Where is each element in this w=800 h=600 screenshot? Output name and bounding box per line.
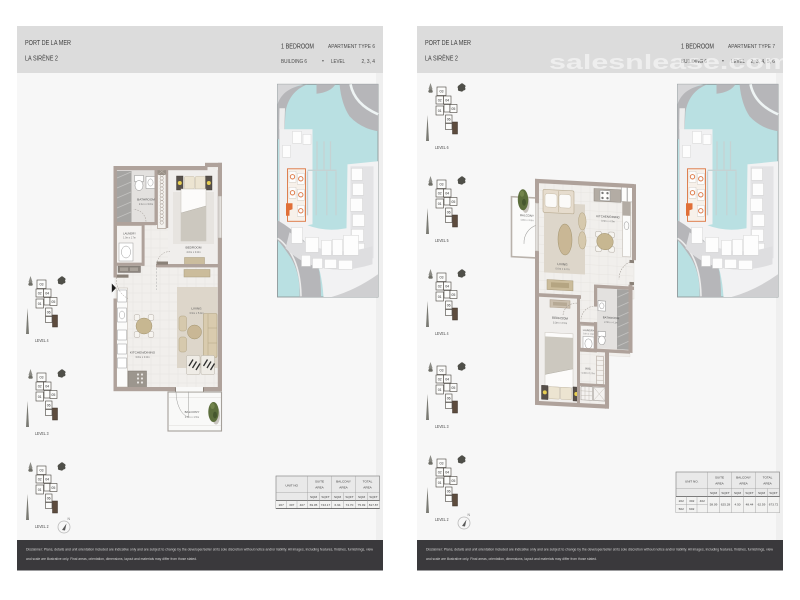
svg-text:•: • [322, 59, 324, 65]
svg-text:4.50: 4.50 [734, 503, 740, 507]
svg-text:UNIT NO: UNIT NO [285, 484, 298, 488]
svg-text:Disclaimer: Plans, details and: Disclaimer: Plans, details and unit orie… [26, 548, 373, 552]
svg-text:LEVEL 4: LEVEL 4 [435, 331, 449, 336]
svg-text:SQM: SQM [358, 495, 365, 499]
svg-text:BALCONY: BALCONY [336, 480, 351, 484]
svg-text:75.99: 75.99 [358, 503, 366, 507]
svg-text:SQM: SQM [758, 491, 765, 495]
svg-text:602: 602 [689, 507, 694, 511]
svg-text:207: 207 [279, 503, 284, 507]
svg-text:LEVEL 6: LEVEL 6 [435, 145, 449, 150]
svg-text:SQFT: SQFT [769, 491, 777, 495]
svg-text:SUITE: SUITE [315, 480, 324, 484]
svg-text:1 BEDROOM: 1 BEDROOM [281, 42, 314, 51]
svg-text:AREA: AREA [763, 482, 772, 486]
svg-text:LAUNDRY: LAUNDRY [123, 232, 136, 236]
svg-text:WIC: WIC [585, 367, 591, 371]
svg-text:BATHROOM: BATHROOM [137, 198, 155, 202]
svg-text:BALCONY: BALCONY [185, 410, 200, 414]
svg-text:4.0m x 3.3m: 4.0m x 3.3m [186, 250, 200, 254]
svg-text:502: 502 [679, 507, 684, 511]
svg-text:PORT DE LA MER: PORT DE LA MER [425, 38, 471, 47]
svg-text:LEVEL: LEVEL [331, 59, 345, 65]
svg-text:and scale are illustrative onl: and scale are illustrative only. Final a… [26, 557, 197, 561]
svg-text:3.9m x 5.4m: 3.9m x 5.4m [189, 311, 203, 315]
svg-text:1.0m x 1.7m: 1.0m x 1.7m [123, 237, 136, 239]
svg-text:SQM: SQM [734, 491, 741, 495]
svg-text:AREA: AREA [339, 486, 348, 490]
svg-text:AREA: AREA [315, 486, 324, 490]
svg-text:817.87: 817.87 [369, 503, 379, 507]
svg-text:307: 307 [289, 503, 294, 507]
svg-text:LEVEL 2: LEVEL 2 [435, 517, 449, 522]
svg-text:SQFT: SQFT [721, 491, 729, 495]
svg-text:SQM: SQM [334, 495, 341, 499]
svg-text:salesnlease.com: salesnlease.com [549, 51, 791, 74]
svg-text:LEVEL 5: LEVEL 5 [435, 238, 449, 243]
svg-text:302: 302 [689, 499, 694, 503]
svg-text:AREA: AREA [715, 482, 724, 486]
svg-text:SQFT: SQFT [345, 495, 353, 499]
svg-text:SQFT: SQFT [321, 495, 329, 499]
svg-text:1 BEDROOM: 1 BEDROOM [681, 42, 714, 51]
svg-text:BALCONY: BALCONY [736, 476, 751, 480]
svg-text:402: 402 [700, 499, 705, 503]
svg-text:BUILDING 6: BUILDING 6 [281, 59, 307, 65]
svg-text:3.3m x 4.5m: 3.3m x 4.5m [553, 320, 567, 325]
svg-text:625.28: 625.28 [721, 503, 731, 507]
svg-text:202: 202 [679, 499, 684, 503]
svg-text:673.72: 673.72 [769, 503, 779, 507]
svg-text:48.44: 48.44 [746, 503, 754, 507]
svg-text:LA SIRÈNE 2: LA SIRÈNE 2 [25, 54, 58, 63]
svg-text:62.59: 62.59 [758, 503, 766, 507]
svg-text:2.1m x 3.0m: 2.1m x 3.0m [139, 202, 153, 206]
svg-text:LEVEL 3: LEVEL 3 [435, 424, 449, 429]
svg-text:LEVEL 3: LEVEL 3 [35, 431, 49, 436]
svg-text:LEVEL 4: LEVEL 4 [35, 338, 49, 343]
svg-text:PORT DE LA MER: PORT DE LA MER [25, 38, 71, 47]
svg-text:SQFT: SQFT [745, 491, 753, 495]
svg-text:SUITE: SUITE [715, 476, 724, 480]
svg-text:TOTAL: TOTAL [763, 476, 773, 480]
svg-text:SQFT: SQFT [369, 495, 377, 499]
svg-text:58.09: 58.09 [710, 503, 718, 507]
svg-text:LA SIRÈNE 2: LA SIRÈNE 2 [425, 54, 458, 63]
svg-text:LAUNDRY: LAUNDRY [583, 329, 595, 333]
svg-text:407: 407 [300, 503, 305, 507]
svg-text:UNIT NO.: UNIT NO. [685, 480, 699, 484]
svg-text:743.17: 743.17 [321, 503, 331, 507]
svg-text:BEDROOM: BEDROOM [186, 246, 202, 250]
svg-text:3.6m x 3.3m: 3.6m x 3.3m [135, 355, 149, 359]
svg-text:LIVING: LIVING [557, 262, 568, 267]
svg-text:SQM: SQM [710, 491, 717, 495]
svg-text:69.05: 69.05 [310, 503, 318, 507]
svg-text:SQM: SQM [310, 495, 317, 499]
svg-text:5.0m x 3.7m: 5.0m x 3.7m [555, 266, 569, 271]
svg-text:LEVEL 2: LEVEL 2 [35, 524, 49, 529]
svg-text:AREA: AREA [363, 486, 372, 490]
svg-text:TOTAL: TOTAL [363, 480, 373, 484]
svg-text:APARTMENT TYPE 6: APARTMENT TYPE 6 [328, 44, 375, 50]
svg-text:KITCHEN/DINING: KITCHEN/DINING [130, 351, 156, 355]
svg-text:BALCONY: BALCONY [520, 213, 534, 218]
svg-text:and scale are illustrative onl: and scale are illustrative only. Final a… [426, 557, 597, 561]
svg-text:2, 3, 4: 2, 3, 4 [362, 59, 376, 65]
svg-text:74.70: 74.70 [346, 503, 354, 507]
svg-text:AREA: AREA [739, 482, 748, 486]
svg-text:APARTMENT TYPE 7: APARTMENT TYPE 7 [728, 44, 775, 50]
svg-text:LIVING: LIVING [191, 307, 202, 311]
svg-text:6.94: 6.94 [334, 503, 340, 507]
svg-text:Disclaimer: Plans, details and: Disclaimer: Plans, details and unit orie… [426, 548, 773, 552]
